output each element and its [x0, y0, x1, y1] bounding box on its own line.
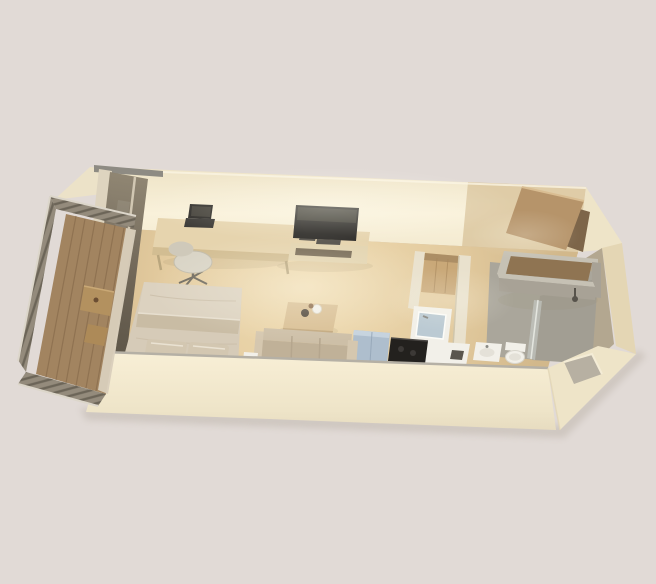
balcony-stool [84, 324, 108, 346]
cooktop [388, 338, 428, 364]
burner [398, 346, 404, 352]
floor-plan-3d-render [0, 0, 656, 584]
vanity-faucet [486, 345, 489, 348]
balcony-table-bowl [94, 298, 99, 303]
shower-head [572, 296, 578, 302]
vanity-basin [480, 348, 495, 357]
entry-light-glow [470, 210, 580, 260]
toilet-seat [509, 353, 521, 361]
counter-slot [450, 350, 464, 360]
kitchen-light-glow [385, 268, 515, 332]
burner [410, 350, 416, 356]
wall-light-glow [145, 167, 515, 243]
